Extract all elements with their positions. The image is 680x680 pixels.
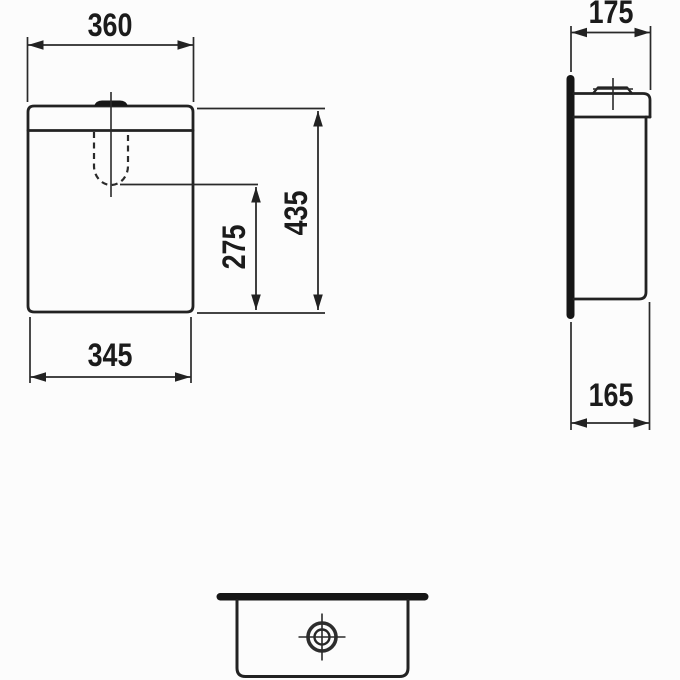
dim-text-front-top-width: 360 bbox=[88, 8, 133, 44]
side-view: 175 165 bbox=[567, 0, 651, 430]
dim-text-front-bottom-width: 345 bbox=[88, 338, 133, 374]
dimension-345: 345 bbox=[30, 317, 191, 383]
dim-text-side-bottom-depth: 165 bbox=[589, 378, 634, 414]
side-body-outline bbox=[574, 117, 646, 299]
dim-text-side-top-depth: 175 bbox=[589, 0, 634, 31]
dim-text-front-flush-valve-height: 275 bbox=[217, 225, 253, 270]
plan-wall-bar bbox=[217, 593, 429, 601]
dimension-175: 175 bbox=[571, 0, 651, 90]
plan-view bbox=[217, 593, 429, 677]
technical-drawing-canvas: 360 435 275 345 bbox=[0, 0, 680, 680]
front-view: 360 435 275 345 bbox=[28, 8, 326, 383]
dimension-435: 435 bbox=[197, 109, 325, 314]
dimension-165: 165 bbox=[571, 302, 650, 430]
side-lid-outline bbox=[574, 94, 650, 118]
dimension-360: 360 bbox=[28, 8, 194, 102]
cistern-dimension-drawing: 360 435 275 345 bbox=[0, 0, 680, 680]
side-wall-bar bbox=[567, 75, 575, 319]
inlet-target-symbol bbox=[299, 614, 346, 661]
dimension-275: 275 bbox=[217, 187, 256, 310]
dim-text-front-overall-height: 435 bbox=[279, 191, 315, 236]
